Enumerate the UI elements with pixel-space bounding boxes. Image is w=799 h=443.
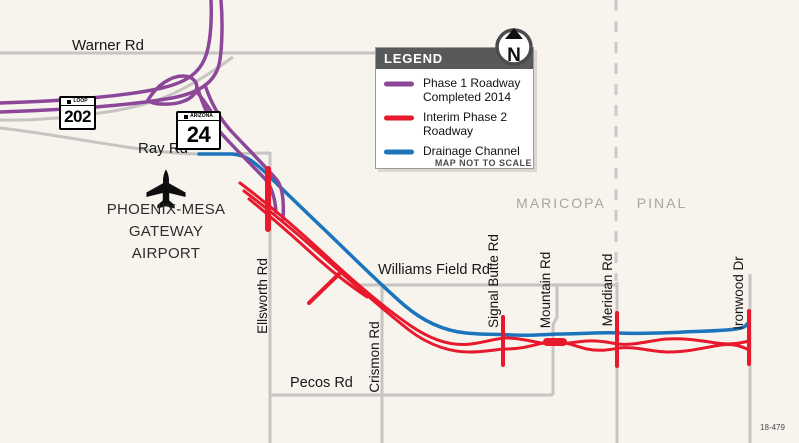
sr-24-shield: ARIZONA 24 bbox=[176, 111, 221, 150]
airport-label: PHOENIX-MESA GATEWAY AIRPORT bbox=[95, 199, 237, 265]
legend-label-interim-phase2: Interim Phase 2 Roadway bbox=[423, 111, 525, 138]
williams-field-rd-label: Williams Field Rd bbox=[378, 262, 490, 278]
loop-202-banner: LOOP bbox=[61, 98, 94, 106]
shield-square-icon bbox=[184, 115, 188, 119]
legend-body: Phase 1 Roadway Completed 2014 Interim P… bbox=[376, 69, 533, 168]
mountain-rd-label: Mountain Rd bbox=[538, 220, 554, 360]
legend-item-drainage: Drainage Channel bbox=[383, 145, 525, 159]
airport-label-line3: AIRPORT bbox=[95, 243, 237, 265]
phase1-roadway-layer bbox=[0, 0, 283, 219]
legend-item-interim-phase2: Interim Phase 2 Roadway bbox=[383, 111, 525, 138]
legend-label-phase1: Phase 1 Roadway Completed 2014 bbox=[423, 77, 525, 104]
airport-label-line2: GATEWAY bbox=[95, 221, 237, 243]
legend-label-drainage: Drainage Channel bbox=[423, 145, 520, 159]
ironwood-dr-label: Ironwood Dr bbox=[731, 223, 747, 363]
drainage-channel-path bbox=[199, 154, 747, 335]
crismon-rd-label: Crismon Rd bbox=[367, 287, 383, 427]
drainage-swatch-icon bbox=[383, 149, 415, 155]
signal-butte-rd-label: Signal Butte Rd bbox=[486, 211, 502, 351]
crossing-bar-williams-field bbox=[309, 274, 339, 303]
drainage-channel-layer bbox=[199, 154, 747, 335]
warner-rd-label: Warner Rd bbox=[72, 37, 144, 54]
pecos-rd-label: Pecos Rd bbox=[290, 375, 353, 391]
sr-24-number: 24 bbox=[178, 121, 219, 148]
county-label-pinal: PINAL bbox=[612, 195, 712, 211]
map-scale-note: MAP NOT TO SCALE bbox=[420, 158, 532, 168]
sr-24-banner: ARIZONA bbox=[178, 113, 219, 121]
interim-phase2-swatch-icon bbox=[383, 115, 415, 121]
phase1-swatch-icon bbox=[383, 81, 415, 87]
airport-label-line1: PHOENIX-MESA bbox=[95, 199, 237, 221]
north-arrow-icon: N bbox=[492, 21, 536, 67]
project-map: Warner Rd Ray Rd Williams Field Rd Pecos… bbox=[0, 0, 799, 443]
meridian-rd-label: Meridian Rd bbox=[600, 220, 616, 360]
county-label-maricopa: MARICOPA bbox=[511, 195, 611, 211]
north-arrow-letter: N bbox=[507, 45, 521, 66]
legend-item-phase1: Phase 1 Roadway Completed 2014 bbox=[383, 77, 525, 104]
shield-square-icon bbox=[67, 100, 71, 104]
figure-number: 18-479 bbox=[760, 423, 785, 432]
loop-202-shield: LOOP 202 bbox=[59, 96, 96, 130]
loop-202-number: 202 bbox=[61, 106, 94, 128]
ellsworth-rd-label: Ellsworth Rd bbox=[255, 226, 271, 366]
